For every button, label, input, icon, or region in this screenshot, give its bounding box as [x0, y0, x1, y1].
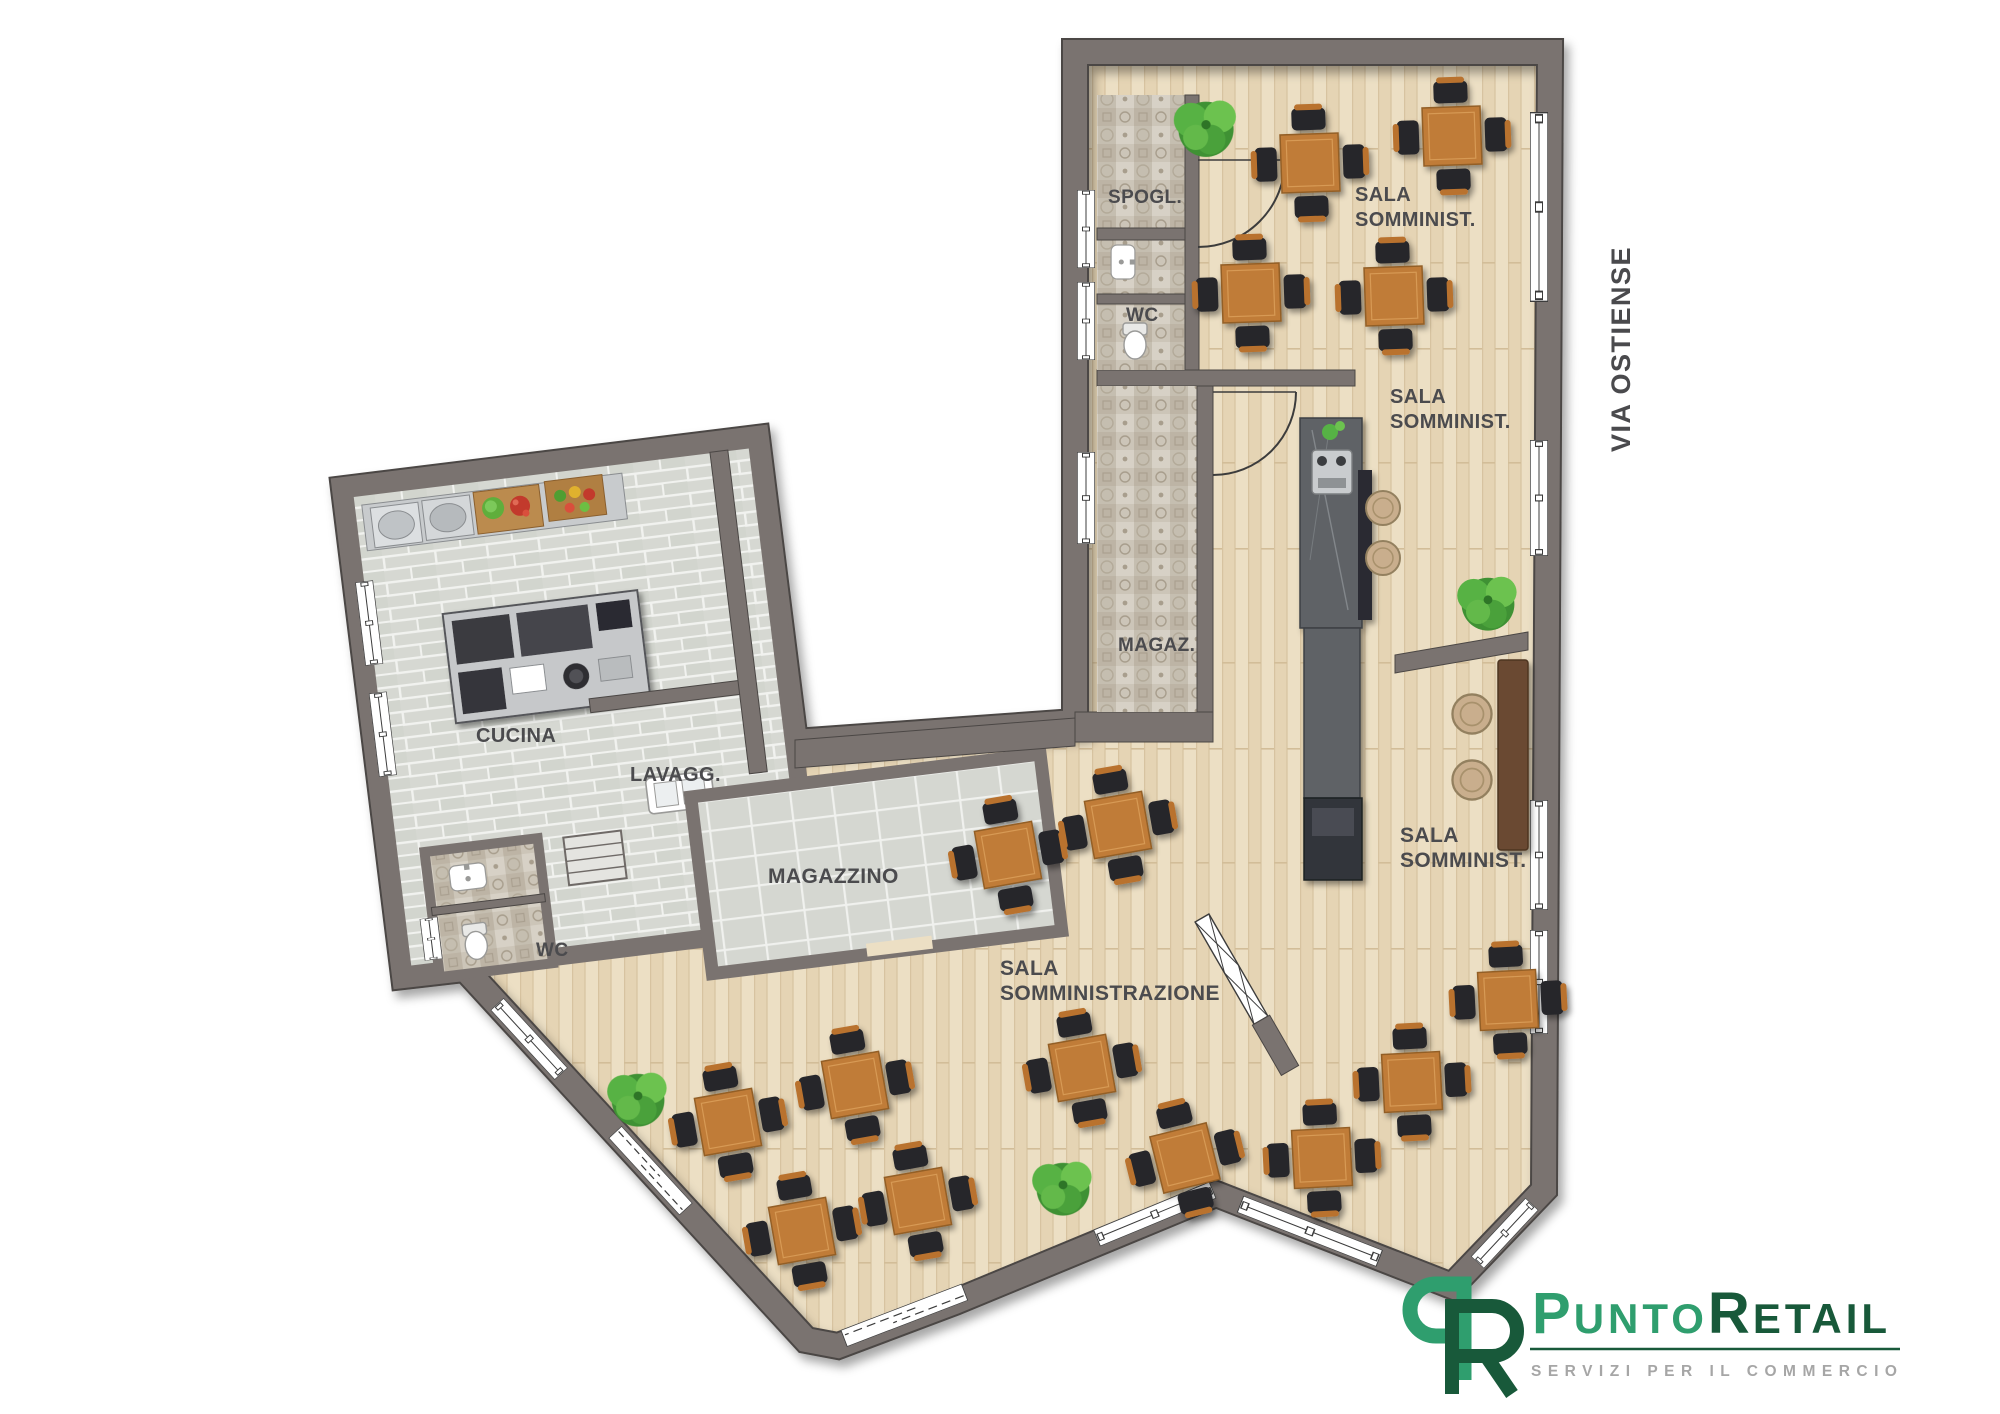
logo-word1-rest: UNTO [1574, 1295, 1708, 1342]
logo-wordmark: PUNTORETAIL [1532, 1281, 1891, 1346]
wall-below-magaz [1075, 712, 1213, 742]
room-label-magazzino: MAGAZZINO [768, 865, 899, 888]
room-label-sala3-line1: SALA [1400, 824, 1459, 847]
logo: PUNTORETAIL SERVIZI PER IL COMMERCIO [1410, 1281, 1903, 1394]
street-label: VIA OSTIENSE [1606, 246, 1636, 452]
room-label-cucina: CUCINA [476, 725, 556, 747]
room-label-sala2-line2: SOMMINIST. [1390, 411, 1511, 433]
logo-word2-initial: R [1708, 1281, 1753, 1346]
window [1077, 190, 1095, 268]
stairs [563, 831, 626, 886]
logo-word2-rest: ETAIL [1753, 1295, 1891, 1342]
bench [1498, 660, 1528, 850]
spogl-divider [1097, 228, 1185, 240]
room-label-magaz: MAGAZ. [1118, 635, 1195, 656]
room-label-sala3-line2: SOMMINIST. [1400, 849, 1527, 872]
wc-left-room [412, 838, 553, 979]
bar-stool [1366, 541, 1400, 575]
room-label-sala1-line2: SOMMINIST. [1355, 209, 1476, 231]
lounge-stool [1452, 760, 1491, 799]
room-label-wc-left: WC [536, 940, 568, 961]
counter-plant [1335, 421, 1345, 431]
divider-wall-1 [1097, 370, 1355, 386]
window [1077, 282, 1095, 360]
produce-board [544, 475, 606, 522]
logo-tagline: SERVIZI PER IL COMMERCIO [1531, 1363, 1903, 1380]
window [1077, 452, 1095, 544]
sink [1111, 245, 1135, 279]
floor-plan-page: SPOGL. WC SALA SOMMINIST. SALA SOMMINIST… [0, 0, 2000, 1414]
toilet [1123, 323, 1147, 359]
room-label-sala1-line1: SALA [1355, 184, 1411, 206]
magaz-east-wall [1197, 386, 1213, 712]
window [1530, 800, 1548, 910]
window [1530, 112, 1548, 302]
stock-pot [370, 502, 423, 548]
sink [448, 862, 487, 891]
logo-monogram [1410, 1284, 1517, 1394]
stock-pot [422, 495, 475, 541]
floor-plan: SPOGL. WC SALA SOMMINIST. SALA SOMMINIST… [0, 0, 2000, 1414]
lounge-stool [1452, 694, 1491, 733]
bar-stool [1366, 491, 1400, 525]
produce-board [473, 484, 544, 534]
room-label-sala-main-line2: SOMMINISTRAZIONE [1000, 982, 1220, 1005]
room-label-lavagg: LAVAGG. [630, 764, 721, 786]
magaz-floor [1097, 386, 1197, 712]
window [1530, 440, 1548, 556]
room-label-spogl: SPOGL. [1108, 187, 1182, 208]
room-label-wc-top: WC [1126, 305, 1158, 326]
room-label-sala2-line1: SALA [1390, 386, 1446, 408]
logo-word1-initial: P [1532, 1281, 1574, 1346]
coffee-machine [1312, 450, 1352, 494]
wc-divider [1097, 294, 1185, 304]
room-label-sala-main-line1: SALA [1000, 957, 1059, 980]
